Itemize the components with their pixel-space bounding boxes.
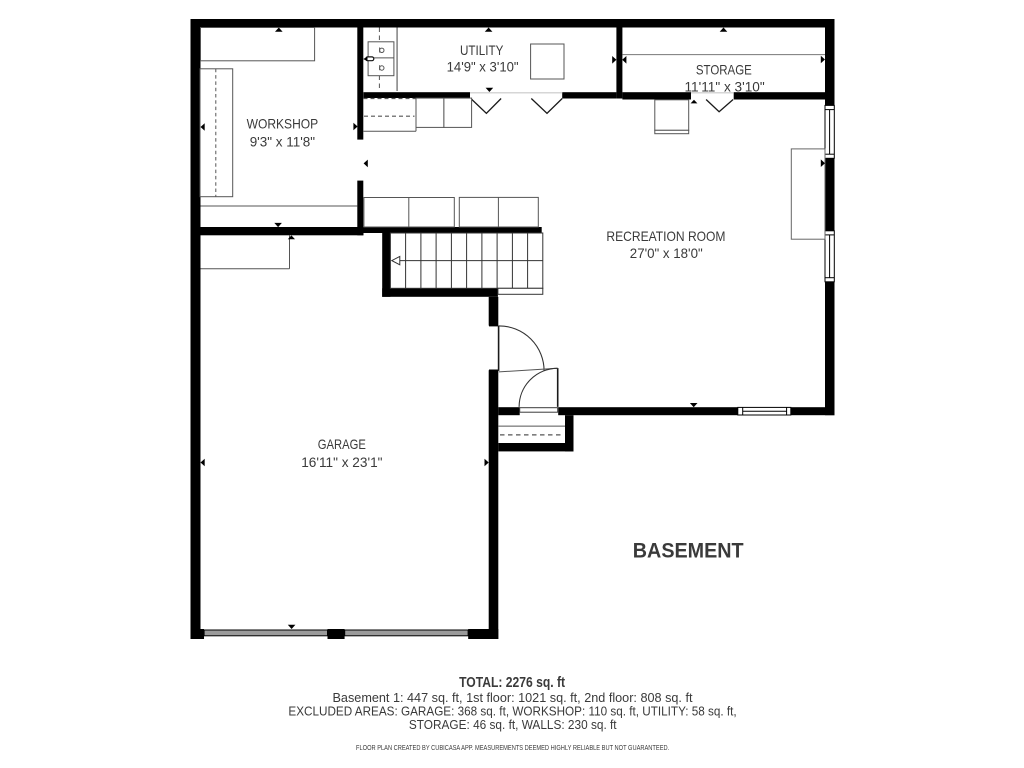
svg-text:9'3" x 11'8": 9'3" x 11'8" — [250, 134, 315, 150]
svg-text:STORAGE: STORAGE — [696, 61, 752, 77]
svg-text:11'11" x 3'10": 11'11" x 3'10" — [685, 79, 765, 95]
svg-text:FLOOR PLAN CREATED BY CUBICASA: FLOOR PLAN CREATED BY CUBICASA APP. MEAS… — [356, 745, 669, 752]
svg-text:16'11" x 23'1": 16'11" x 23'1" — [301, 454, 382, 470]
svg-text:27'0" x 18'0": 27'0" x 18'0" — [630, 245, 703, 261]
svg-text:WORKSHOP: WORKSHOP — [247, 115, 319, 131]
svg-text:TOTAL: 2276 sq. ft: TOTAL: 2276 sq. ft — [459, 675, 565, 691]
svg-text:UTILITY: UTILITY — [460, 42, 504, 58]
svg-text:BASEMENT: BASEMENT — [633, 538, 744, 562]
svg-text:GARAGE: GARAGE — [318, 436, 366, 452]
svg-text:STORAGE: 46 sq. ft, WALLS: 230: STORAGE: 46 sq. ft, WALLS: 230 sq. ft — [409, 717, 617, 732]
svg-text:RECREATION ROOM: RECREATION ROOM — [606, 228, 725, 244]
svg-text:14'9" x 3'10": 14'9" x 3'10" — [447, 59, 519, 75]
